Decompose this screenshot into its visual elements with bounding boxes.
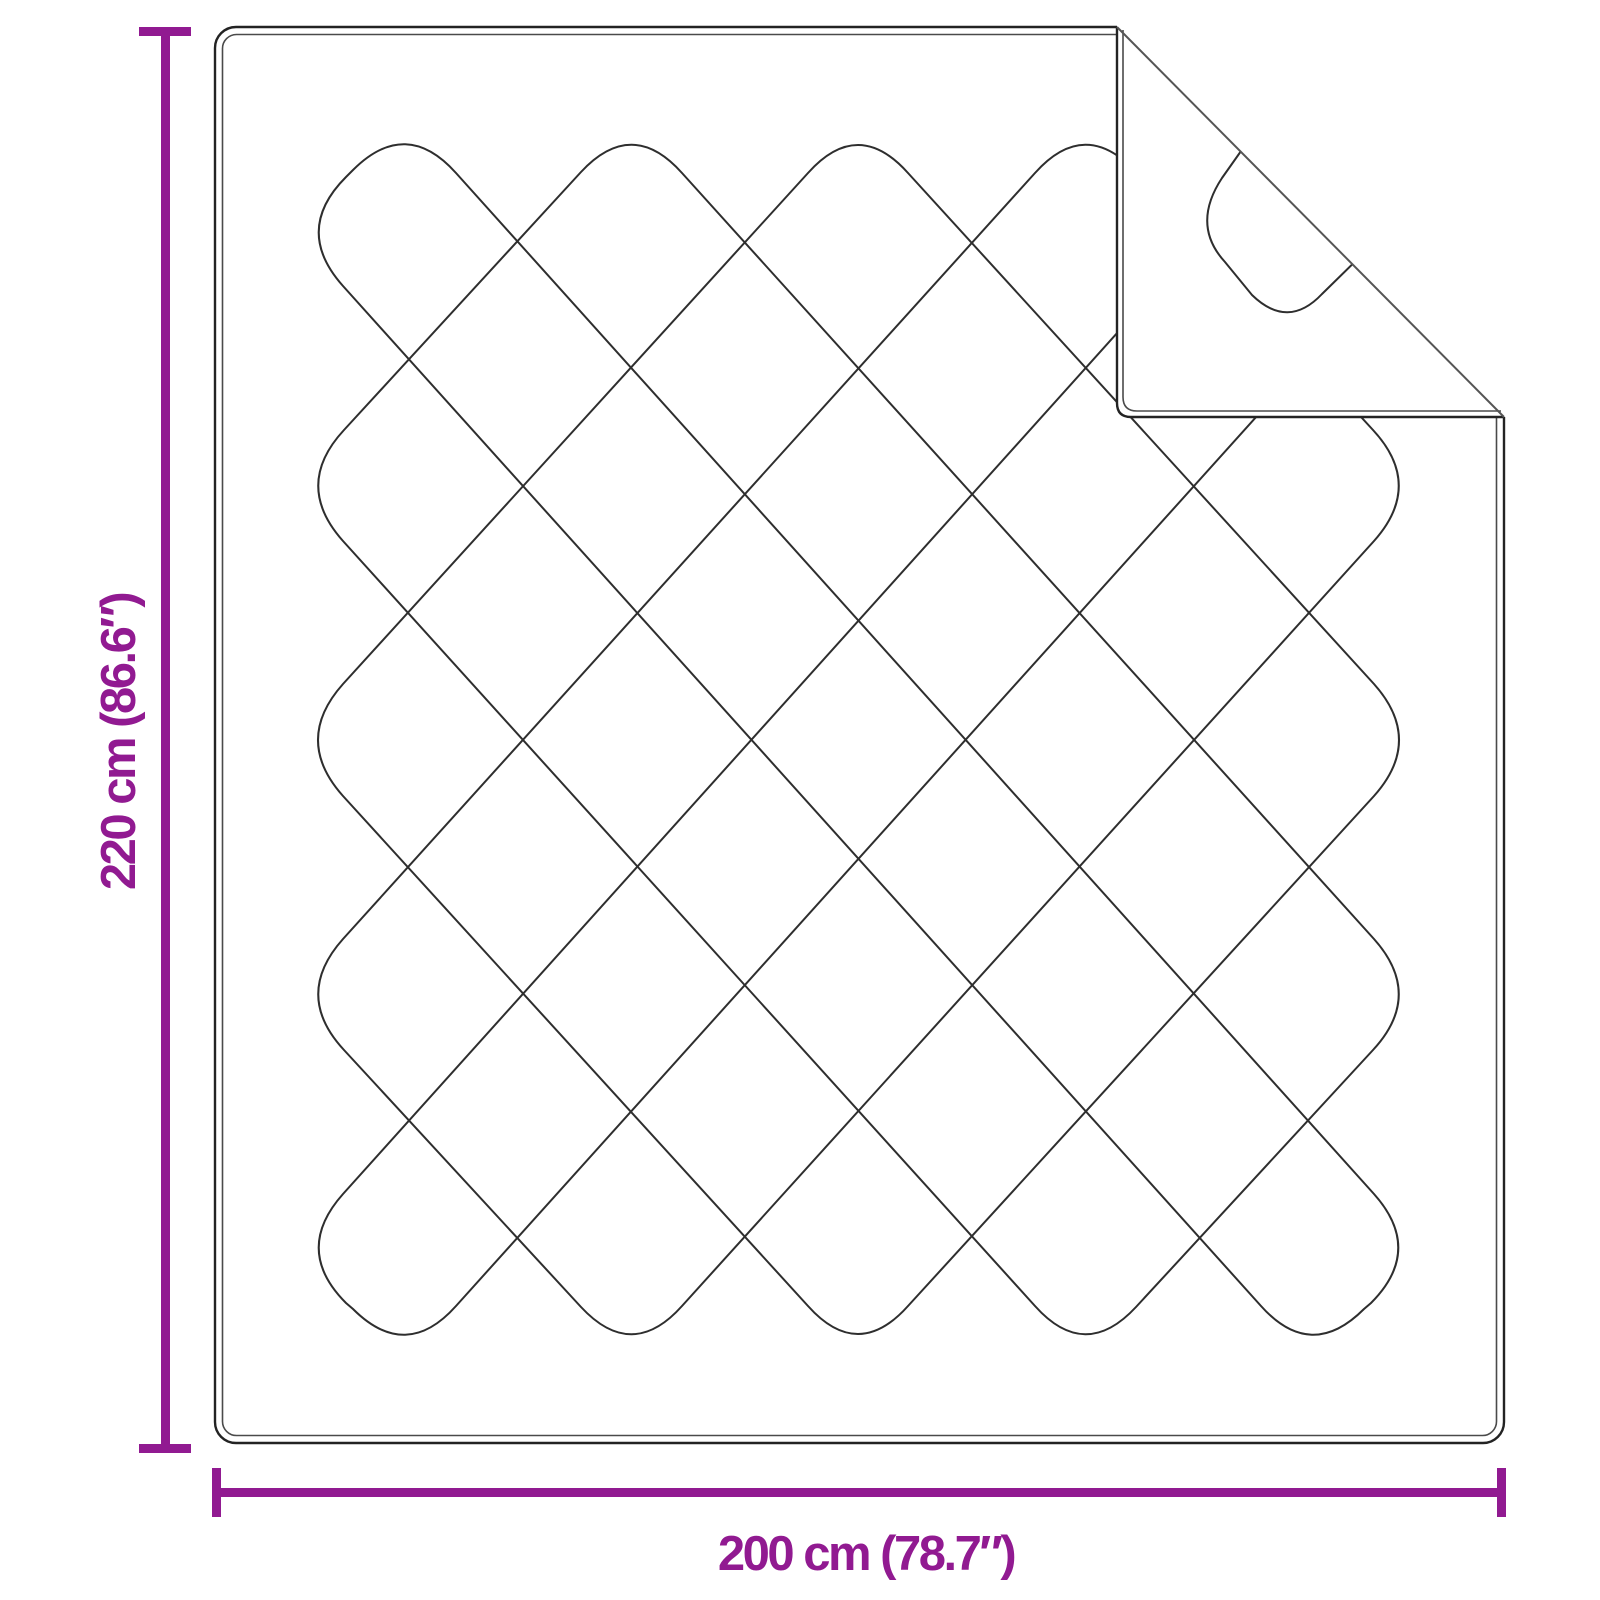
product-dimension-diagram: 220 cm (86.6″) 200 cm (78.7″) — [0, 0, 1600, 1600]
width-dimension-right-cap — [1497, 1468, 1506, 1517]
width-dimension-left-cap — [212, 1468, 221, 1517]
width-dimension-line — [212, 1488, 1506, 1497]
height-dimension-line — [161, 27, 170, 1453]
height-dimension: 220 cm (86.6″) — [92, 27, 191, 1453]
blanket-dimension-drawing: 220 cm (86.6″) 200 cm (78.7″) — [0, 0, 1600, 1600]
folded-corner — [1117, 27, 1504, 417]
width-dimension-label: 200 cm (78.7″) — [718, 1527, 1014, 1581]
height-dimension-top-cap — [139, 27, 191, 36]
height-dimension-label: 220 cm (86.6″) — [92, 594, 146, 890]
width-dimension: 200 cm (78.7″) — [212, 1468, 1506, 1581]
height-dimension-bottom-cap — [139, 1444, 191, 1453]
